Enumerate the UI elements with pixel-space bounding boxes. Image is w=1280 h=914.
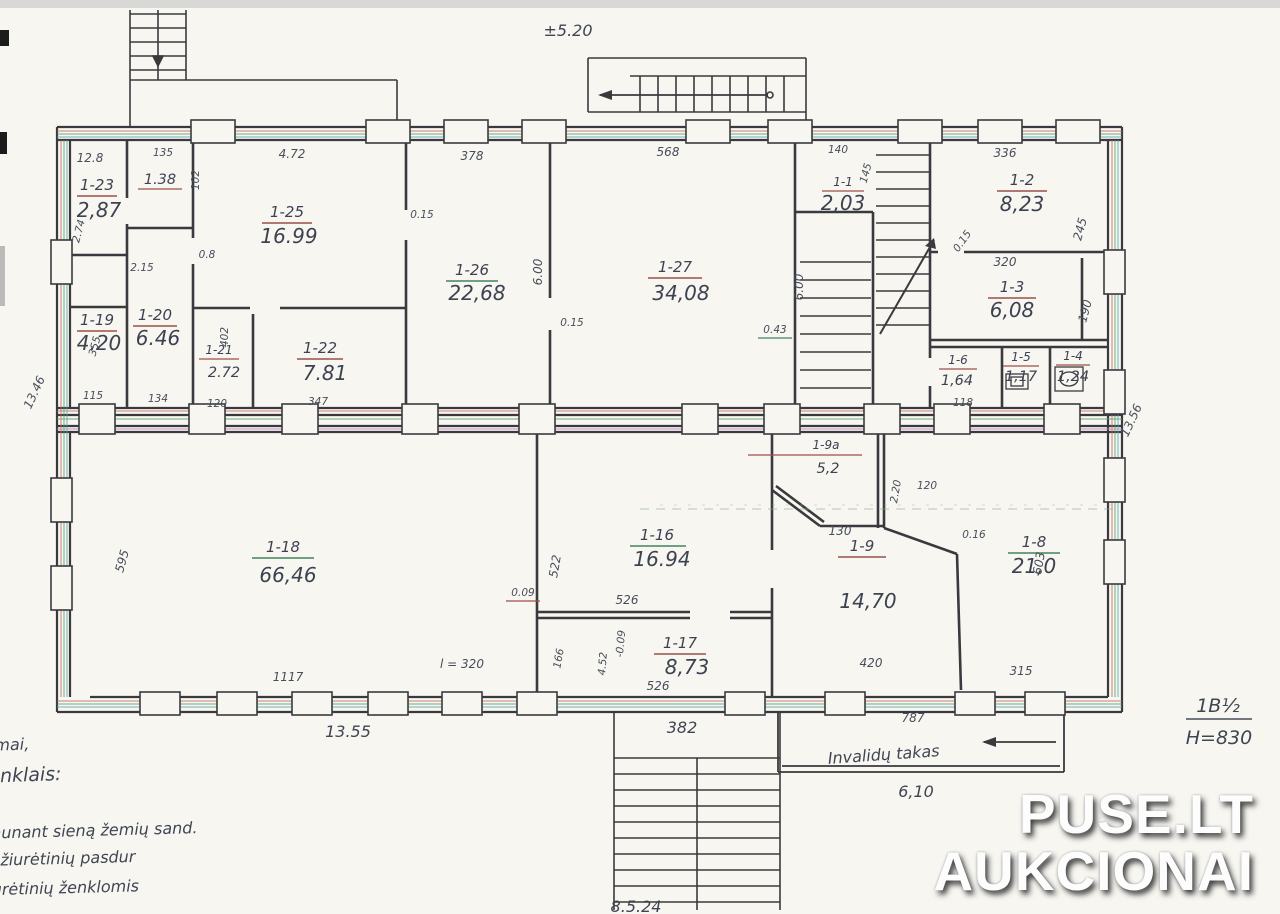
dimension-label: -0.09 xyxy=(614,629,628,657)
floor-code: 1B½ xyxy=(1196,695,1240,717)
room-1-20-label: 1-20 xyxy=(138,306,172,324)
dimension-label: 787 xyxy=(902,711,925,725)
room-1-9-label: 1-9 xyxy=(850,537,875,555)
room-1-18-label: 1-18 xyxy=(266,538,300,556)
dimension-label: 347 xyxy=(308,396,328,408)
room-1-21-area: 2.72 xyxy=(208,365,240,381)
dimension-label: 315 xyxy=(1010,664,1033,678)
dimension-label: 2.15 xyxy=(130,262,154,274)
room-1-6-area: 1,64 xyxy=(941,373,973,389)
room-1-2-label: 1-2 xyxy=(1010,171,1035,189)
room-1-25-area: 16.99 xyxy=(260,224,317,248)
dimension-label: 134 xyxy=(148,393,168,405)
dimension-label: 1117 xyxy=(273,670,304,684)
dimension-label: 0.8 xyxy=(199,249,216,261)
ramp-length-label: 6,10 xyxy=(898,782,934,801)
room-1-25-label: 1-25 xyxy=(270,203,304,221)
dimension-label: 0.15 xyxy=(410,209,434,221)
room-1-5-label: 1-5 xyxy=(1011,350,1031,364)
watermark-line1: PUSE.LT xyxy=(933,786,1254,843)
watermark-line2: AUKCIONAI xyxy=(933,843,1254,900)
room-1-16-area: 16.94 xyxy=(633,547,690,571)
dimension-label: l = 320 xyxy=(440,657,484,671)
note-line: mai, xyxy=(0,734,30,754)
room-1-20-area: 6.46 xyxy=(136,326,181,350)
room-1-8-label: 1-8 xyxy=(1022,533,1047,551)
dimension-label: 130 xyxy=(829,524,852,538)
room-1-23-label: 1-23 xyxy=(80,176,114,194)
room-1-27-area: 34,08 xyxy=(652,281,709,305)
room-1-17-label: 1-17 xyxy=(663,634,697,652)
dimension-label: 526 xyxy=(616,593,639,607)
room-1-4-area: 1,24 xyxy=(1057,369,1089,385)
dimension-label: 0.43 xyxy=(763,324,786,336)
room-1-26-area: 22,68 xyxy=(448,281,505,305)
dimension-label: 120 xyxy=(917,480,937,492)
dimension-label: 0.16 xyxy=(962,529,986,541)
scan-top-strip xyxy=(0,0,1280,8)
dimension-label: 526 xyxy=(647,679,670,693)
dimension-label: 402 xyxy=(219,327,231,347)
room-1-1-area: 2,03 xyxy=(821,191,866,215)
room-1-5-area: 1,17 xyxy=(1005,369,1038,385)
elevation-label: ±5.20 xyxy=(543,21,592,40)
dimension-label: 135 xyxy=(153,147,173,159)
room-1-16-label: 1-16 xyxy=(640,526,674,544)
room-1-9-area: 14,70 xyxy=(839,589,896,613)
dimension-label: 568 xyxy=(657,145,680,159)
room-1-9a-area: 5,2 xyxy=(816,461,839,477)
dimension-label: 320 xyxy=(994,255,1017,269)
room-1-6-label: 1-6 xyxy=(948,353,968,367)
dimension-label: 0.15 xyxy=(560,317,584,329)
dimension-label: 13.55 xyxy=(325,722,371,741)
room-1-2-area: 8,23 xyxy=(1000,192,1045,216)
dimension-label: 0.09 xyxy=(511,587,535,599)
room-1-27-label: 1-27 xyxy=(658,258,692,276)
room-1-23-area: 2,87 xyxy=(77,198,122,222)
room-1-17-area: 8,73 xyxy=(665,655,710,679)
dimension-label: 120 xyxy=(207,398,227,410)
room-1-4-label: 1-4 xyxy=(1063,349,1083,363)
floor-plan-canvas: 1-23 2,87 1.38 1-25 16.99 1-26 22,68 1-2… xyxy=(0,0,1280,914)
dimension-label: 140 xyxy=(828,144,848,156)
dimension-label: 4.52 xyxy=(596,651,610,676)
building-height: H=830 xyxy=(1186,727,1252,749)
room-1-19-label: 1-19 xyxy=(80,311,114,329)
dimension-label: 118 xyxy=(953,397,973,409)
room-1-9a-label: 1-9a xyxy=(813,438,840,452)
dimension-label: 115 xyxy=(83,390,103,402)
room-1-22-area: 7.81 xyxy=(303,361,348,385)
note-line: iai ženklais: xyxy=(0,763,62,789)
room-1-26-label: 1-26 xyxy=(455,261,489,279)
room-1-3-area: 6,08 xyxy=(990,298,1035,322)
dimension-label: 378 xyxy=(461,149,484,163)
room-1-3-label: 1-3 xyxy=(1000,278,1025,296)
watermark: PUSE.LT AUKCIONAI xyxy=(933,786,1254,900)
dimension-label: 336 xyxy=(994,146,1017,160)
dimension-label: 4.72 xyxy=(279,147,306,161)
partial-bottom-label: 8.5.24 xyxy=(611,897,662,914)
room-138-area: 1.38 xyxy=(144,172,176,188)
dimension-label: 420 xyxy=(860,656,883,670)
dimension-label: 102 xyxy=(190,170,202,190)
dimension-label: 382 xyxy=(667,718,698,737)
room-1-22-label: 1-22 xyxy=(303,339,337,357)
room-1-1-label: 1-1 xyxy=(833,175,853,189)
room-1-18-area: 66,46 xyxy=(259,563,316,587)
dimension-label: 6.00 xyxy=(792,273,806,300)
dimension-label: 12.8 xyxy=(77,151,104,165)
dimension-label: 6.00 xyxy=(531,258,545,285)
